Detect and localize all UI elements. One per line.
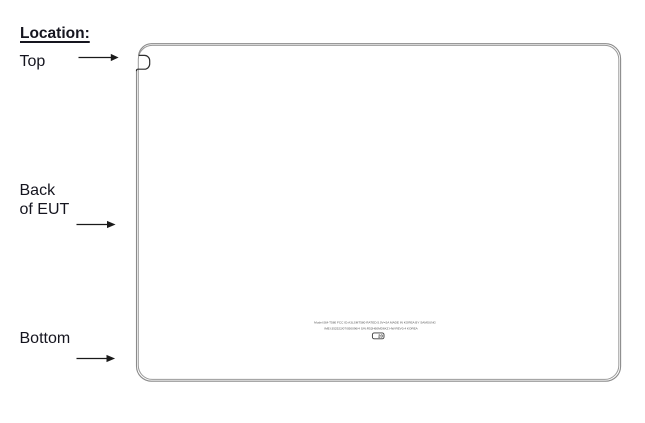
svg-text:Model:SM-T580 FCC ID:A3LSMT58: Model:SM-T580 FCC ID:A3LSMT580 RATED:5.0… bbox=[314, 321, 436, 325]
svg-text:20: 20 bbox=[378, 334, 383, 339]
svg-text:IMEI:352522/07/050096/4 S/N:R: IMEI:352522/07/050096/4 S/N:R52H60MD6KZ … bbox=[324, 326, 418, 330]
